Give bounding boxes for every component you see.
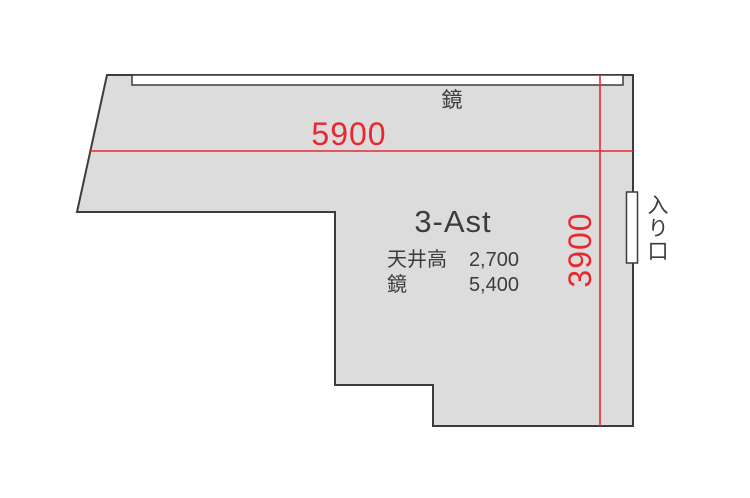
room-specs: 天井高 2,700 鏡 5,400 — [387, 248, 519, 298]
height-dimension: 3900 — [564, 212, 596, 287]
spec-row-mirror: 鏡 5,400 — [387, 273, 519, 298]
floorplan-canvas: 鏡 5900 3900 3-Ast 天井高 2,700 鏡 5,400 入り口 — [0, 0, 750, 498]
entrance-label: 入り口 — [641, 194, 671, 266]
spec-value: 2,700 — [469, 248, 519, 273]
spec-row-ceiling: 天井高 2,700 — [387, 248, 519, 273]
width-dimension: 5900 — [299, 118, 399, 150]
mirror-label: 鏡 — [433, 84, 471, 114]
mirror-strip — [132, 75, 623, 85]
spec-label: 天井高 — [387, 248, 447, 273]
entrance-door — [627, 192, 638, 263]
room-name: 3-Ast — [390, 204, 516, 240]
floorplan-drawing — [0, 0, 750, 498]
spec-value: 5,400 — [469, 273, 519, 298]
spec-label: 鏡 — [387, 273, 407, 298]
